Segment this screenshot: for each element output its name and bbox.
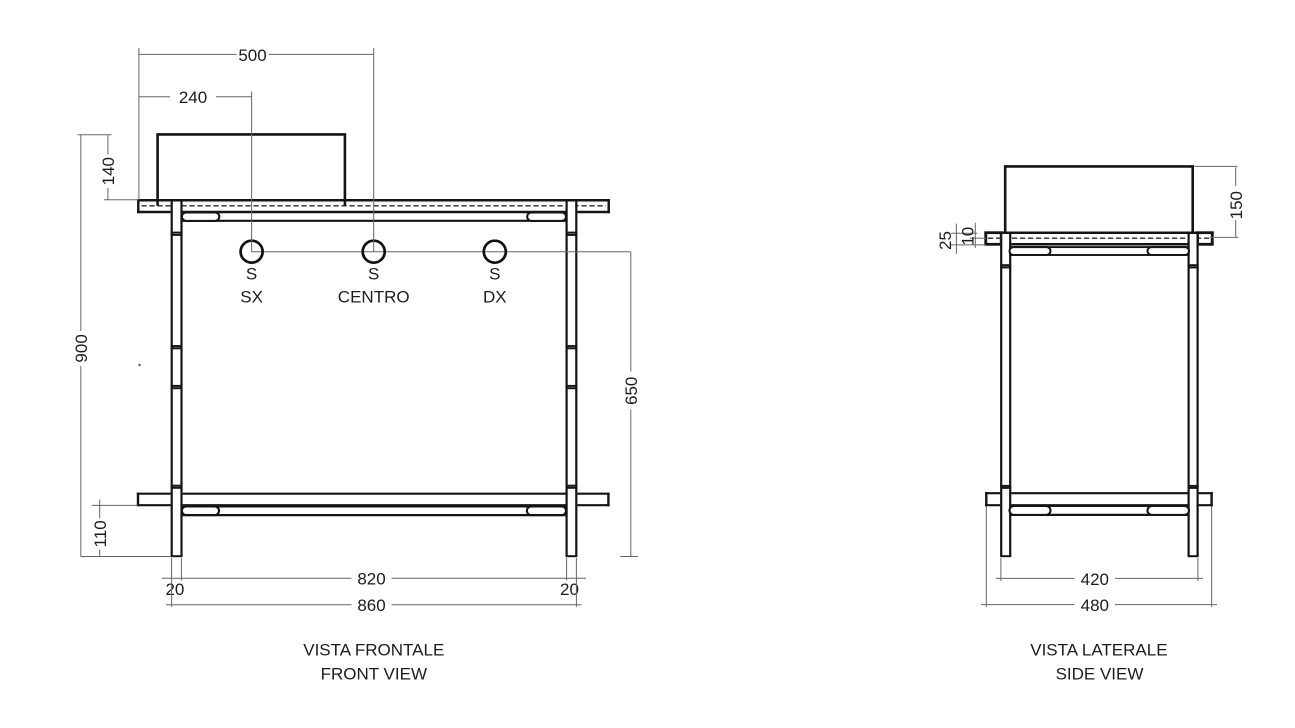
svg-text:110: 110 <box>91 520 110 547</box>
svg-text:900: 900 <box>72 334 91 362</box>
svg-text:480: 480 <box>1081 596 1109 615</box>
svg-text:240: 240 <box>179 88 207 107</box>
svg-text:DX: DX <box>483 288 507 307</box>
svg-text:650: 650 <box>622 377 641 405</box>
svg-text:SX: SX <box>240 288 263 307</box>
svg-text:420: 420 <box>1081 570 1109 589</box>
svg-text:20: 20 <box>165 580 184 599</box>
svg-text:140: 140 <box>99 157 118 185</box>
svg-text:150: 150 <box>1227 191 1246 219</box>
svg-text:500: 500 <box>238 46 266 65</box>
svg-text:VISTA FRONTALE: VISTA FRONTALE <box>303 641 444 660</box>
svg-text:820: 820 <box>357 570 385 589</box>
svg-text:CENTRO: CENTRO <box>338 288 410 307</box>
svg-text:S: S <box>368 265 379 284</box>
svg-text:S: S <box>489 265 500 284</box>
svg-text:S: S <box>246 265 257 284</box>
svg-text:860: 860 <box>357 596 385 615</box>
svg-text:SIDE VIEW: SIDE VIEW <box>1056 665 1144 684</box>
svg-text:FRONT VIEW: FRONT VIEW <box>321 664 427 683</box>
svg-text:VISTA LATERALE: VISTA LATERALE <box>1030 641 1167 660</box>
svg-text:10: 10 <box>959 227 978 246</box>
svg-text:25: 25 <box>936 231 955 250</box>
